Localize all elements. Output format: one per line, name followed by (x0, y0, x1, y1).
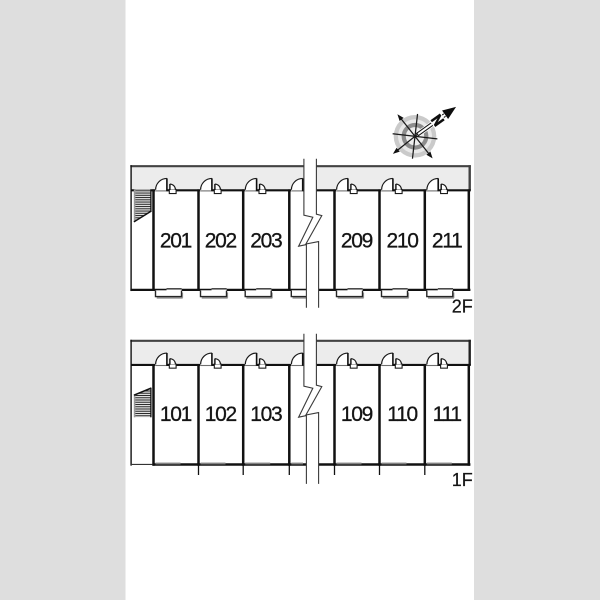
svg-text:203: 203 (250, 229, 282, 252)
svg-text:110: 110 (387, 403, 417, 426)
svg-text:211: 211 (432, 229, 462, 252)
svg-text:111: 111 (433, 403, 462, 426)
svg-text:210: 210 (387, 229, 419, 252)
svg-text:101: 101 (160, 403, 192, 426)
svg-text:102: 102 (205, 403, 237, 426)
svg-text:1F: 1F (452, 470, 473, 490)
svg-text:202: 202 (205, 229, 237, 252)
svg-text:201: 201 (160, 229, 192, 252)
svg-text:2F: 2F (452, 296, 473, 316)
svg-text:109: 109 (341, 403, 373, 426)
svg-text:209: 209 (341, 229, 373, 252)
svg-text:103: 103 (250, 403, 282, 426)
